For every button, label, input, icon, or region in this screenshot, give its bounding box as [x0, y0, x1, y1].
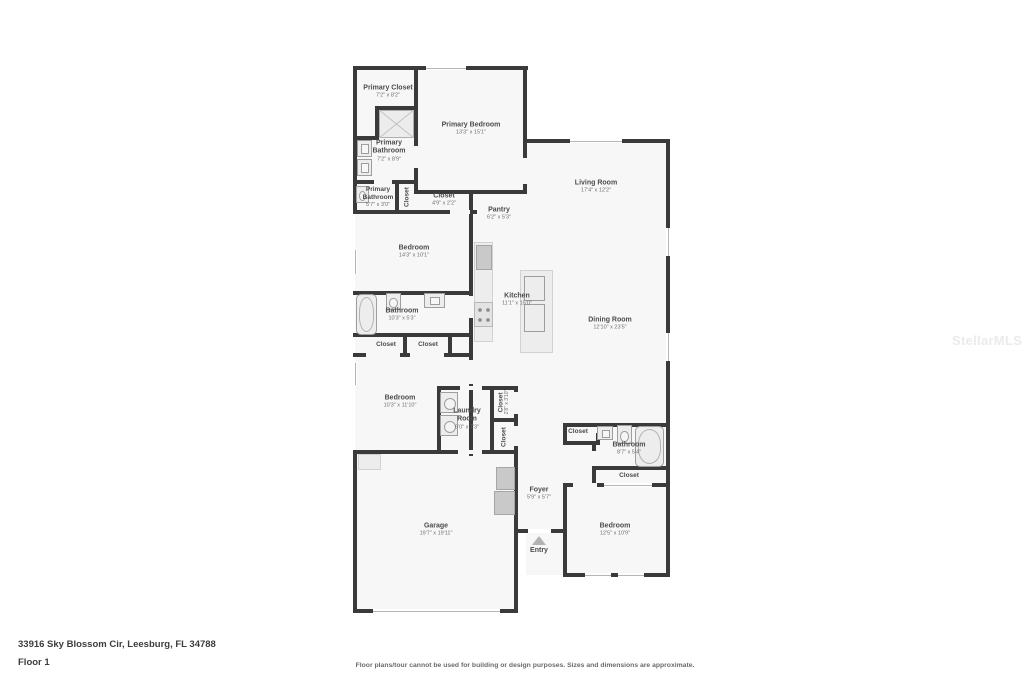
- room-label-closet-bath-3: Closet: [563, 428, 593, 436]
- disclaimer-text: Floor plans/tour cannot be used for buil…: [356, 662, 695, 669]
- room-label-bedroom-3: Bedroom10'3" x 11'10": [371, 395, 429, 410]
- window-marker: [353, 250, 357, 274]
- door-opening: [514, 392, 518, 414]
- island-appliance: [524, 304, 545, 332]
- door-opening: [374, 180, 392, 184]
- water-heater-fixture: [494, 491, 515, 515]
- sink-fixture: [597, 426, 613, 440]
- window-marker: [666, 333, 670, 361]
- window-marker: [353, 363, 357, 385]
- wall: [592, 441, 596, 451]
- room-label-bedroom-4: Bedroom12'5" x 10'9": [586, 523, 644, 538]
- room-label-closet-b-right: Closet: [408, 341, 448, 349]
- stellar-mls-watermark: StellarMLS: [952, 333, 1022, 348]
- door-opening: [514, 426, 518, 446]
- door-opening: [573, 483, 597, 487]
- room-label-primary-bathroom: Primary Bathroom7'2" x 8'9": [367, 139, 411, 162]
- shower-fixture: [379, 110, 414, 138]
- room-label-closet-bed-4: Closet: [609, 472, 649, 480]
- room-label-bathroom-3: Bathroom8'7" x 5'4": [607, 442, 651, 457]
- room-label-pantry: Pantry6'2" x 5'3": [475, 207, 523, 222]
- window-marker: [570, 139, 622, 143]
- door-opening: [478, 236, 502, 240]
- room-label-laundry: Laundry Room6'0" x 7'3": [447, 407, 487, 430]
- window-marker: [618, 573, 644, 577]
- entry-label: Entry: [519, 547, 559, 555]
- room-label-closet-primary: Closet: [403, 187, 410, 207]
- wall: [563, 573, 670, 577]
- room-label-garage: Garage19'7" x 19'11": [407, 523, 465, 538]
- wall: [469, 336, 473, 456]
- door-opening: [460, 386, 482, 390]
- room-label-dining-room: Dining Room12'10" x 23'5": [577, 317, 643, 332]
- door-opening: [458, 450, 482, 454]
- window-marker: [585, 573, 611, 577]
- water-heater-fixture: [496, 467, 515, 490]
- door-opening: [410, 353, 444, 357]
- door-opening: [414, 146, 418, 168]
- door-opening: [450, 210, 470, 214]
- room-label-foyer: Foyer5'9" x 5'7": [516, 487, 562, 502]
- entry-arrow-icon: [532, 536, 546, 545]
- wall: [563, 483, 567, 577]
- vanity-sink-fixture: [424, 293, 445, 308]
- garage-door-opening: [373, 609, 500, 613]
- entry-opening: [528, 529, 551, 533]
- door-opening: [366, 353, 400, 357]
- floor-plan: Primary Closet7'2" x 8'2" Primary Bedroo…: [0, 0, 1024, 682]
- room-label-kitchen: Kitchen11'1" x 15'0": [491, 293, 543, 308]
- door-opening: [469, 360, 473, 384]
- door-opening: [523, 158, 527, 184]
- door-opening: [469, 296, 473, 318]
- floor-label: Floor 1: [18, 657, 50, 668]
- refrigerator-fixture: [476, 245, 492, 270]
- room-label-closet-hall-2: Closet: [500, 427, 507, 447]
- room-label-closet-b-left: Closet: [366, 341, 406, 349]
- wall: [448, 333, 452, 357]
- window-marker: [666, 228, 670, 256]
- room-label-primary-bedroom: Primary Bedroom13'3" x 15'1": [436, 122, 506, 137]
- room-label-primary-bathroom-2: Primary Bathroom5'7" x 3'0": [357, 186, 399, 208]
- garage-shelf: [358, 454, 381, 470]
- room-label-living-room: Living Room17'4" x 12'2": [564, 180, 628, 195]
- room-label-primary-closet: Primary Closet7'2" x 8'2": [359, 85, 417, 100]
- closet-slider-opening: [604, 483, 652, 487]
- room-label-bathroom-2: Bathroom10'3" x 5'3": [374, 308, 430, 323]
- room-label-closet-laundry: Closet2'8" x 3'10": [497, 390, 510, 415]
- window-marker: [426, 66, 466, 70]
- room-label-closet-hall: Closet4'9" x 2'2": [418, 193, 470, 208]
- wall: [353, 450, 357, 613]
- room-label-bedroom-2: Bedroom14'3" x 10'1": [385, 245, 443, 260]
- property-address: 33916 Sky Blossom Cir, Leesburg, FL 3478…: [18, 639, 216, 650]
